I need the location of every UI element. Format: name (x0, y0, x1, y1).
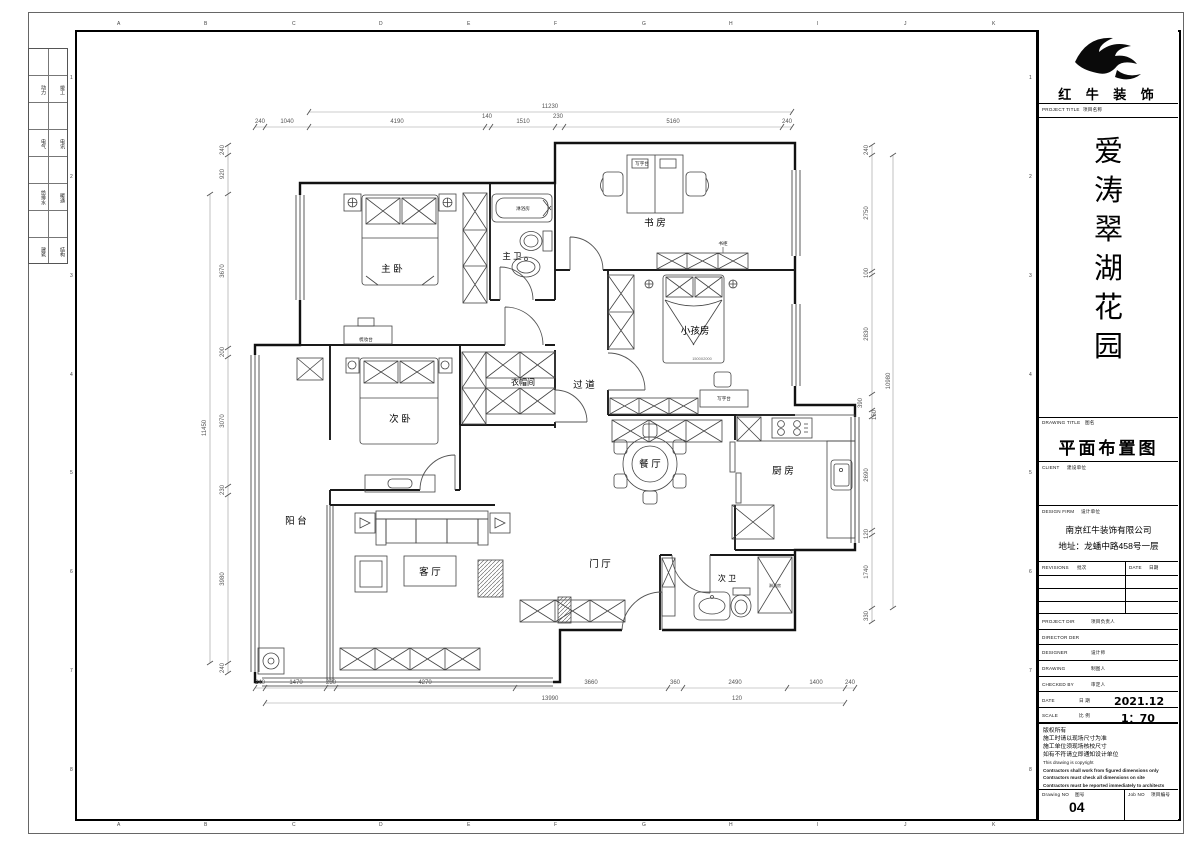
job-no-label: Job NO (1128, 792, 1145, 797)
date-value: 2021.12 (1114, 695, 1164, 708)
date-row: DATE 日 期 2021.12 (1039, 693, 1178, 709)
project-name-char: 爱 (1039, 132, 1178, 171)
dim-total-right: 10980 (886, 372, 892, 389)
dim: 330 (864, 610, 870, 621)
project-name-char: 涛 (1039, 171, 1178, 210)
note-line: This drawing is copyright (1043, 759, 1174, 767)
room-label-master-bath: 主 卫 (502, 251, 522, 261)
client-label-cn: 建设单位 (1067, 465, 1086, 471)
design-firm-section: DESIGN FIRM 设计单位 南京红牛装饰有限公司 地址：龙蟠中路458号一… (1039, 506, 1178, 562)
dim: 240 (864, 144, 870, 155)
foyer-furniture (520, 597, 625, 623)
room-label-living-room: 客 厅 (419, 566, 441, 578)
dim-offset-bottom: 120 (732, 696, 743, 702)
drawing-label-cn: 制图人 (1091, 666, 1105, 672)
revisions-label: REVISIONS (1042, 565, 1069, 570)
room-label-second-bedroom: 次 卧 (389, 413, 411, 425)
project-title-label: PROJECT TITLE (1042, 107, 1080, 112)
note-line: Contractors must check all dimensions on… (1043, 774, 1174, 782)
dim-total-bottom: 13990 (542, 696, 559, 702)
dim: 3670 (220, 264, 226, 278)
project-dir-label-cn: 项目负责人 (1091, 619, 1115, 625)
room-label-corridor: 过 道 (573, 379, 595, 391)
dim: 1510 (516, 119, 530, 125)
dim: 240 (845, 680, 856, 686)
dim: 920 (220, 168, 226, 179)
director-label: DIRECTOR DER (1042, 635, 1079, 640)
design-firm-label-cn: 设计单位 (1081, 509, 1100, 515)
label-desk-kids: 写字台 (717, 395, 731, 402)
dim: 4190 (390, 119, 404, 125)
room-label-study: 书 房 (644, 217, 666, 229)
drawing-title-label: DRAWING TITLE (1042, 420, 1080, 425)
study-furniture (601, 155, 749, 269)
dim-total-left: 11450 (202, 419, 208, 436)
note-line: 版权所有 (1043, 727, 1174, 735)
room-label-foyer: 门 厅 (589, 558, 611, 570)
project-name: 爱 涛 翠 湖 花 园 (1039, 132, 1178, 366)
logo-section: 红 牛 装 饰 (1039, 30, 1178, 104)
scale-label-cn: 比 例 (1079, 713, 1090, 719)
project-name-char: 翠 (1039, 210, 1178, 249)
client-label: CLIENT (1042, 465, 1060, 470)
interior-walls (300, 183, 795, 630)
room-label-second-bath: 次 卫 (718, 573, 736, 583)
dim: 240 (782, 119, 793, 125)
dim: 360 (670, 680, 681, 686)
dim: 230 (220, 484, 226, 495)
project-name-section: 爱 涛 翠 湖 花 园 (1039, 118, 1178, 418)
date-label-cn: 日 期 (1079, 698, 1090, 704)
dim: 140 (482, 114, 493, 120)
dim: 2490 (728, 680, 742, 686)
label-shower-second: 淋浴房 (769, 582, 781, 588)
design-firm-label: DESIGN FIRM (1042, 509, 1074, 514)
dim: 230 (326, 680, 337, 686)
drawing-label: DRAWING (1042, 666, 1065, 671)
drawing-sheet: A B C D E F G H I J K A B C D E F G H I … (0, 0, 1200, 844)
title-block: 红 牛 装 饰 PROJECT TITLE 项目名称 爱 涛 翠 湖 花 园 D… (1039, 30, 1178, 820)
project-dir-label: PROJECT DIR (1042, 619, 1075, 624)
dim: 1400 (809, 680, 823, 686)
dim: 240 (255, 680, 266, 686)
second-bedroom-furniture (297, 358, 452, 492)
room-label-dining-room: 餐 厅 (639, 458, 661, 470)
designer-label-cn: 设计师 (1091, 650, 1105, 656)
dim: 1740 (864, 565, 870, 579)
director-row: DIRECTOR DER (1039, 630, 1178, 646)
kitchen-furniture (732, 415, 855, 539)
scale-row: SCALE 比 例 1：70 (1039, 708, 1178, 724)
dim: 120 (864, 528, 870, 539)
drawing-row: DRAWING 制图人 (1039, 661, 1178, 677)
dim: 240 (220, 144, 226, 155)
room-label-master-bedroom: 主 卧 (381, 263, 403, 275)
project-name-char: 湖 (1039, 249, 1178, 288)
design-firm-name: 南京红牛装饰有限公司 (1039, 524, 1178, 536)
notes-section: 版权所有 施工时请以现场尺寸为准 施工单位须现场核校尺寸 如有不符请立即通知设计… (1039, 724, 1178, 790)
project-name-char: 园 (1039, 327, 1178, 366)
dim: 1470 (289, 680, 303, 686)
dim: 4270 (418, 680, 432, 686)
revisions-label-cn: 批次 (1077, 565, 1087, 571)
label-bookcase: 书柜 (718, 240, 728, 247)
drawing-title-row: 平面布置图 (1039, 429, 1178, 462)
second-bath-fixtures (662, 557, 792, 620)
revisions-table: REVISIONS 批次 DATE 日期 (1039, 562, 1178, 614)
dim: 240 (255, 119, 266, 125)
drawing-no-label: Drawing NO (1042, 792, 1069, 797)
dim: 1040 (280, 119, 294, 125)
designer-label: DESIGNER (1042, 650, 1068, 655)
floor-plan: 主 卧 主 卫 书 房 小孩房 过 道 衣帽间 次 卧 阳 台 客 厅 餐 厅 … (0, 0, 1040, 844)
number-section: Drawing NO 图号 04 Job NO 项目编号 (1039, 790, 1178, 820)
dim-total-top: 11230 (542, 104, 559, 110)
room-label-cloakroom: 衣帽间 (511, 377, 535, 387)
drawing-title-label-cn: 图名 (1085, 420, 1095, 426)
dining-furniture (612, 420, 722, 504)
client-section: CLIENT 建设单位 (1039, 462, 1178, 506)
balcony-furniture (258, 648, 284, 674)
label-bed-size: 1500X2000 (692, 357, 711, 361)
note-line: 施工时请以现场尺寸为准 (1043, 735, 1174, 743)
label-desk-study: 写字台 (635, 160, 649, 167)
cloakroom-shelving (462, 352, 555, 424)
scale-label: SCALE (1042, 713, 1058, 718)
living-room-furniture (340, 511, 510, 670)
dim: 3660 (584, 680, 598, 686)
drawing-title: 平面布置图 (1039, 434, 1178, 459)
checked-label-cn: 审定人 (1091, 682, 1105, 688)
revisions-date-label: DATE (1129, 565, 1142, 570)
project-name-char: 花 (1039, 288, 1178, 327)
dim: 2750 (864, 206, 870, 220)
checked-label: CHECKED BY (1042, 682, 1074, 687)
dimension-lines (207, 109, 896, 706)
job-no-label-cn: 项目编号 (1151, 792, 1170, 798)
drawing-no-label-cn: 图号 (1075, 792, 1085, 798)
project-title-label-row: PROJECT TITLE 项目名称 (1039, 104, 1178, 118)
dim: 390 (858, 397, 864, 408)
label-dresser: 梳妆台 (359, 336, 373, 343)
dim: 150 (872, 409, 878, 420)
revisions-date-label-cn: 日期 (1149, 565, 1159, 571)
project-title-label-cn: 项目名称 (1083, 107, 1102, 113)
kids-room-furniture (608, 275, 748, 414)
date-label: DATE (1042, 698, 1055, 703)
drawing-no-value: 04 (1069, 799, 1085, 815)
drawing-title-label-row: DRAWING TITLE 图名 (1039, 418, 1178, 429)
dim: 100 (864, 267, 870, 278)
master-bedroom-furniture (344, 193, 487, 344)
dim: 2690 (864, 468, 870, 482)
dim: 5160 (666, 119, 680, 125)
dim: 3980 (220, 572, 226, 586)
note-line: Contractors must be reported immediately… (1043, 782, 1174, 790)
room-label-kitchen: 厨 房 (772, 465, 794, 477)
label-shower-master: 淋浴房 (516, 205, 530, 212)
project-dir-row: PROJECT DIR 项目负责人 (1039, 614, 1178, 630)
note-line: Contractors shall work from figured dime… (1043, 767, 1174, 775)
note-line: 如有不符请立即通知设计单位 (1043, 751, 1174, 759)
dim: 2830 (864, 327, 870, 341)
designer-row: DESIGNER 设计师 (1039, 645, 1178, 661)
dim: 230 (553, 114, 564, 120)
dim: 3070 (220, 414, 226, 428)
room-label-balcony: 阳 台 (285, 515, 307, 527)
dim: 200 (220, 346, 226, 357)
room-label-kids-room: 小孩房 (681, 325, 710, 337)
note-line: 施工单位须现场核校尺寸 (1043, 743, 1174, 751)
checked-row: CHECKED BY 审定人 (1039, 677, 1178, 693)
company-logo (1069, 32, 1147, 84)
company-name: 红 牛 装 饰 (1039, 84, 1178, 103)
design-firm-address: 地址：龙蟠中路458号一层 (1039, 540, 1178, 552)
dim: 240 (220, 662, 226, 673)
